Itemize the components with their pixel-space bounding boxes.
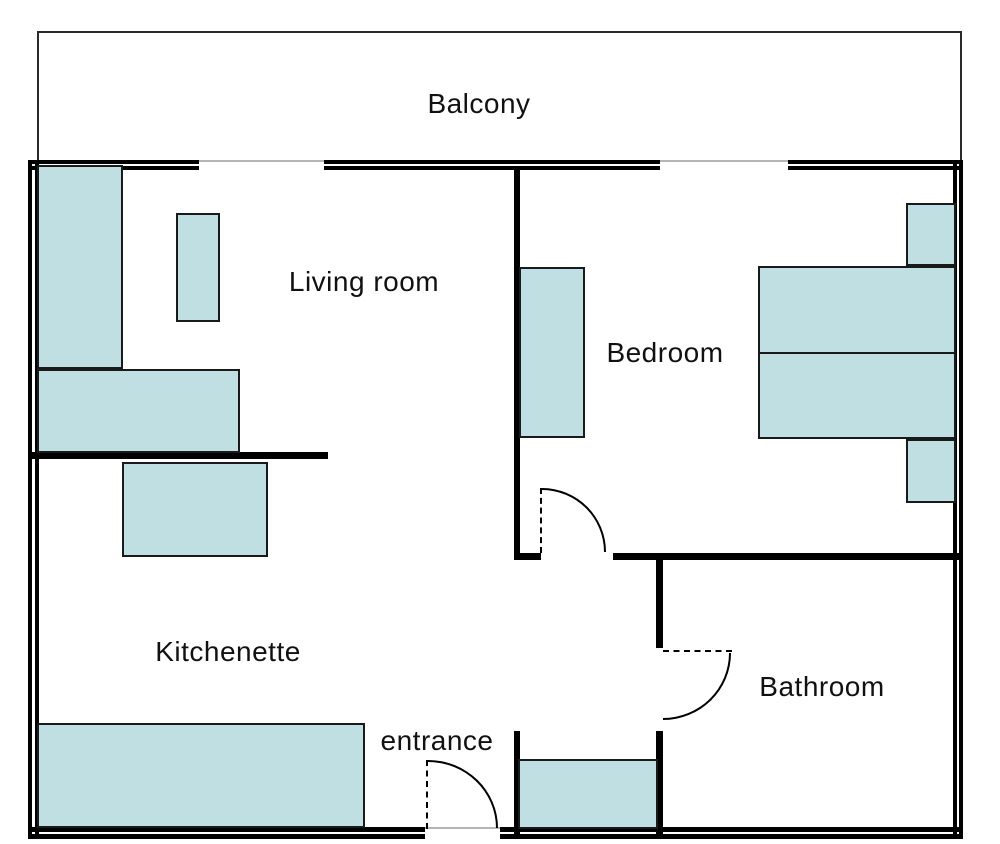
- balcony-label: Balcony: [427, 90, 530, 118]
- entrance-door-arc: [428, 760, 498, 828]
- sofa-vertical: [37, 165, 123, 369]
- wall-bottom-left-outer: [28, 834, 425, 839]
- wall-bedroom-south: [613, 553, 963, 560]
- tv-stand: [122, 462, 268, 557]
- bathroom-door-leaf: [663, 650, 732, 652]
- wall-living-kitchenette: [30, 452, 328, 459]
- floor-plan: Balcony Living room Bedroom Kitchenette …: [0, 0, 1000, 844]
- wardrobe: [519, 267, 585, 438]
- balcony-opening-2: [660, 160, 788, 162]
- wall-top-segment-2-upper: [324, 160, 660, 164]
- wall-top-segment-1-upper: [28, 160, 199, 164]
- wall-top-segment-3-upper: [788, 160, 963, 164]
- wall-bottom-right-outer: [500, 834, 963, 839]
- nightstand-top: [906, 203, 956, 266]
- coffee-table: [176, 213, 220, 322]
- wall-left-outer: [28, 160, 32, 839]
- wall-top-segment-3-lower: [788, 166, 963, 170]
- wall-bathroom-west-upper: [656, 560, 663, 648]
- bed: [758, 266, 956, 439]
- living-room-label: Living room: [289, 268, 439, 296]
- entrance-label: entrance: [381, 727, 494, 755]
- bedroom-door-arc: [542, 488, 606, 552]
- bathroom-label: Bathroom: [759, 673, 884, 701]
- wall-living-bedroom-foot: [514, 553, 541, 560]
- kitchenette-label: Kitchenette: [155, 638, 301, 666]
- kitchen-counter: [37, 723, 365, 828]
- bed-headboard-line: [760, 352, 954, 354]
- wall-top-segment-2-lower: [324, 166, 660, 170]
- bathroom-door-arc: [663, 653, 731, 720]
- nightstand-bottom: [906, 439, 956, 503]
- sofa-horizontal: [37, 369, 240, 453]
- shoe-cabinet: [518, 759, 658, 829]
- bedroom-label: Bedroom: [606, 339, 723, 367]
- balcony-opening-1: [199, 160, 324, 162]
- wall-right-outer: [959, 160, 963, 839]
